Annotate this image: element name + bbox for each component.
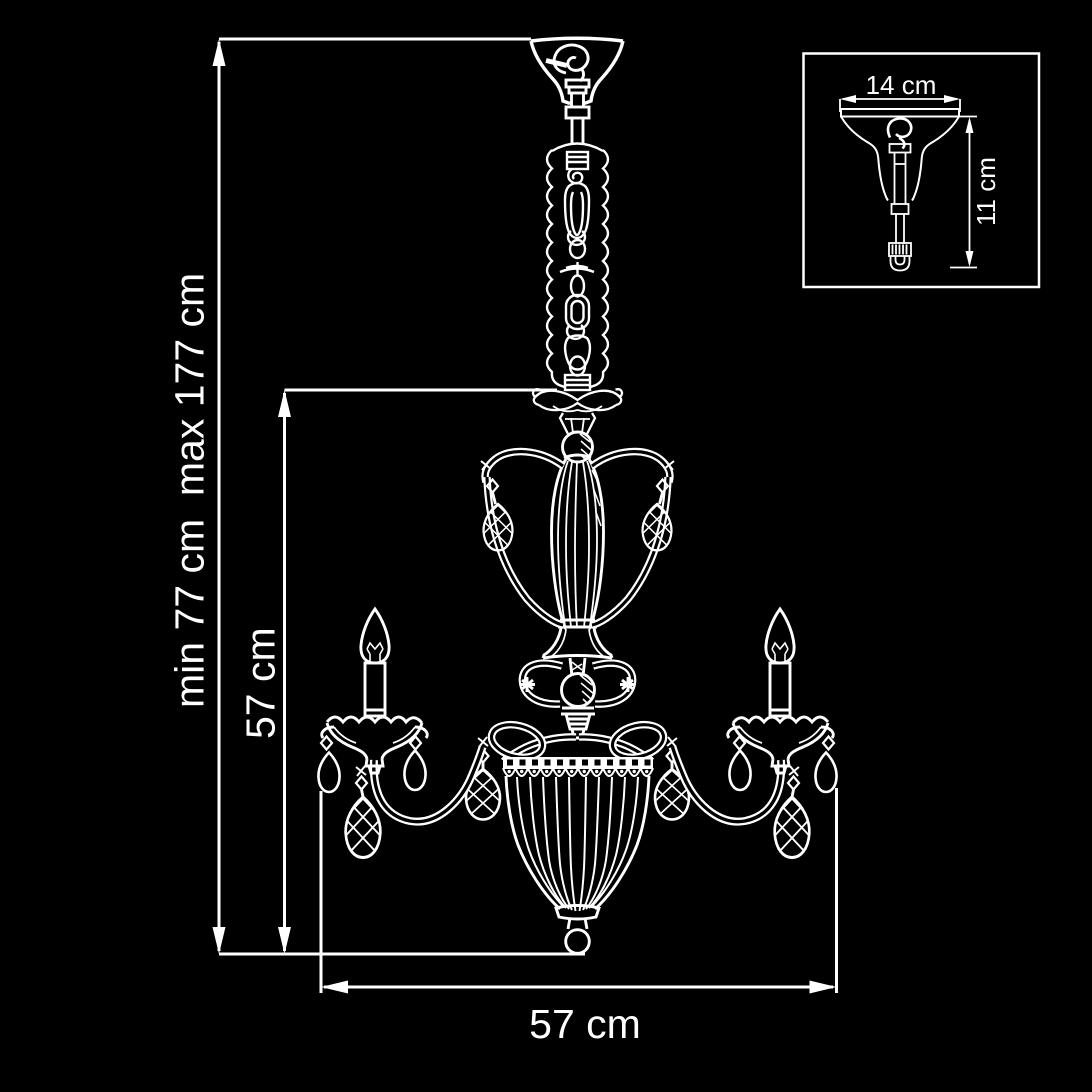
svg-text:57 cm: 57 cm	[238, 627, 284, 739]
svg-text:11 cm: 11 cm	[971, 157, 1001, 226]
svg-text:57 cm: 57 cm	[529, 1001, 641, 1047]
svg-text:14 cm: 14 cm	[866, 70, 937, 100]
svg-text:min 77 cm max 177 cm: min 77 cm max 177 cm	[167, 273, 213, 708]
